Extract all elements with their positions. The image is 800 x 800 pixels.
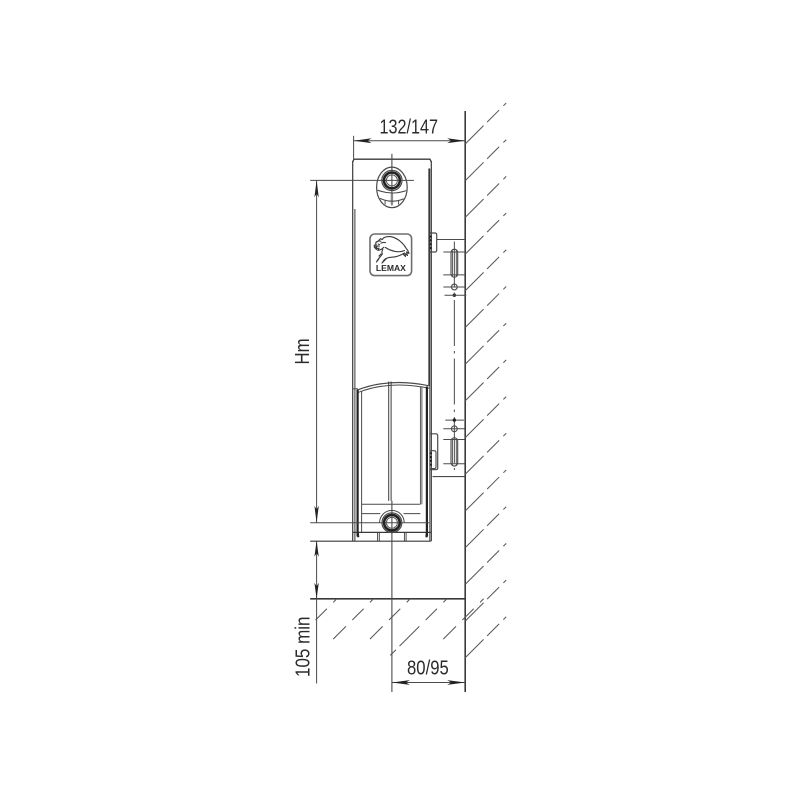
svg-text:Hm: Hm	[292, 339, 314, 365]
svg-text:105 min: 105 min	[293, 617, 315, 678]
svg-text:80/95: 80/95	[407, 658, 449, 680]
svg-text:132/147: 132/147	[380, 116, 439, 138]
svg-text:LEMAX: LEMAX	[376, 264, 407, 273]
